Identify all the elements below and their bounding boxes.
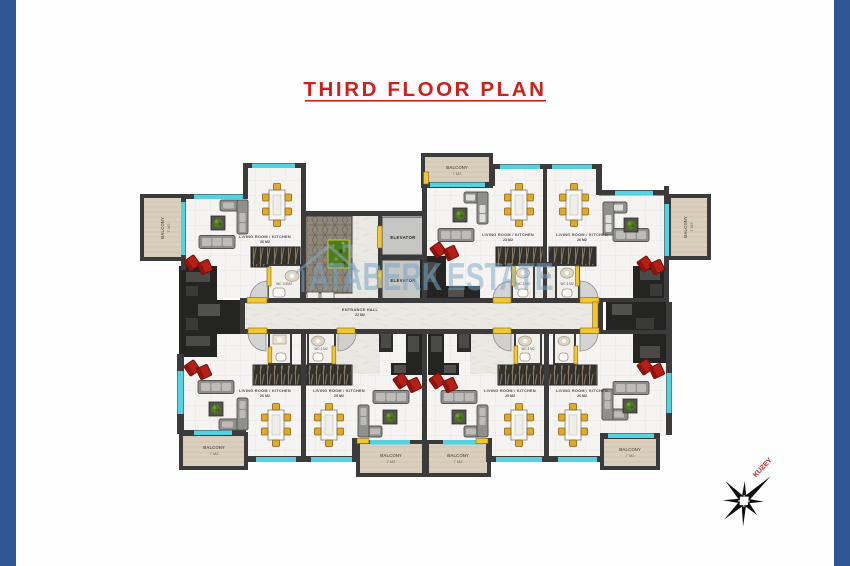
svg-text:BALCONY: BALCONY [203, 445, 225, 450]
svg-text:25 M2: 25 M2 [334, 394, 344, 398]
svg-text:ENTRANCE HALL: ENTRANCE HALL [342, 308, 379, 312]
svg-text:23 M2: 23 M2 [503, 238, 513, 242]
svg-text:LIVING ROOM / KITCHEN: LIVING ROOM / KITCHEN [556, 233, 608, 237]
svg-text:THIRD FLOOR PLAN: THIRD FLOOR PLAN [303, 78, 546, 101]
svg-text:7 M2: 7 M2 [626, 453, 636, 458]
svg-text:BALCONY: BALCONY [380, 453, 402, 458]
svg-text:LIVING ROOM / KITCHEN: LIVING ROOM / KITCHEN [482, 233, 534, 237]
svg-text:BALCONY: BALCONY [683, 216, 688, 238]
svg-text:LIVING ROOM / KITCHEN: LIVING ROOM / KITCHEN [556, 389, 608, 393]
svg-text:7 M2: 7 M2 [210, 451, 220, 456]
svg-text:25 M2: 25 M2 [505, 394, 515, 398]
svg-text:WC 3.5M2: WC 3.5M2 [276, 282, 292, 286]
svg-text:BALCONY: BALCONY [446, 165, 468, 170]
svg-text:LIVING ROOM / KITCHEN: LIVING ROOM / KITCHEN [239, 389, 291, 393]
svg-text:26 M2: 26 M2 [260, 240, 270, 244]
svg-text:7 M2: 7 M2 [453, 171, 463, 176]
svg-text:26 M2: 26 M2 [577, 238, 587, 242]
svg-text:7 M2: 7 M2 [689, 222, 694, 232]
svg-text:LIVING ROOM / KITCHEN: LIVING ROOM / KITCHEN [484, 389, 536, 393]
svg-text:BALCONY: BALCONY [619, 447, 641, 452]
svg-text:WC 3 M2: WC 3 M2 [314, 347, 328, 351]
svg-text:7 M2: 7 M2 [166, 223, 171, 233]
svg-text:ELEVATOR: ELEVATOR [390, 235, 415, 240]
svg-text:BALCONY: BALCONY [160, 217, 165, 239]
svg-text:7 M2: 7 M2 [387, 459, 397, 464]
svg-text:22 M2: 22 M2 [355, 313, 365, 317]
svg-text:LIVING ROOM / KITCHEN: LIVING ROOM / KITCHEN [239, 235, 291, 239]
svg-text:LIVING ROOM / KITCHEN: LIVING ROOM / KITCHEN [313, 389, 365, 393]
svg-text:ESTATE: ESTATE [447, 256, 554, 300]
svg-text:ATABERK: ATABERK [309, 256, 442, 300]
svg-text:BALCONY: BALCONY [447, 453, 469, 458]
svg-text:WC 3 M2: WC 3 M2 [521, 347, 535, 351]
svg-text:7 M2: 7 M2 [454, 459, 464, 464]
svg-text:WC 3 M2: WC 3 M2 [560, 282, 574, 286]
svg-text:26 M2: 26 M2 [260, 394, 270, 398]
svg-text:26 M2: 26 M2 [577, 394, 587, 398]
